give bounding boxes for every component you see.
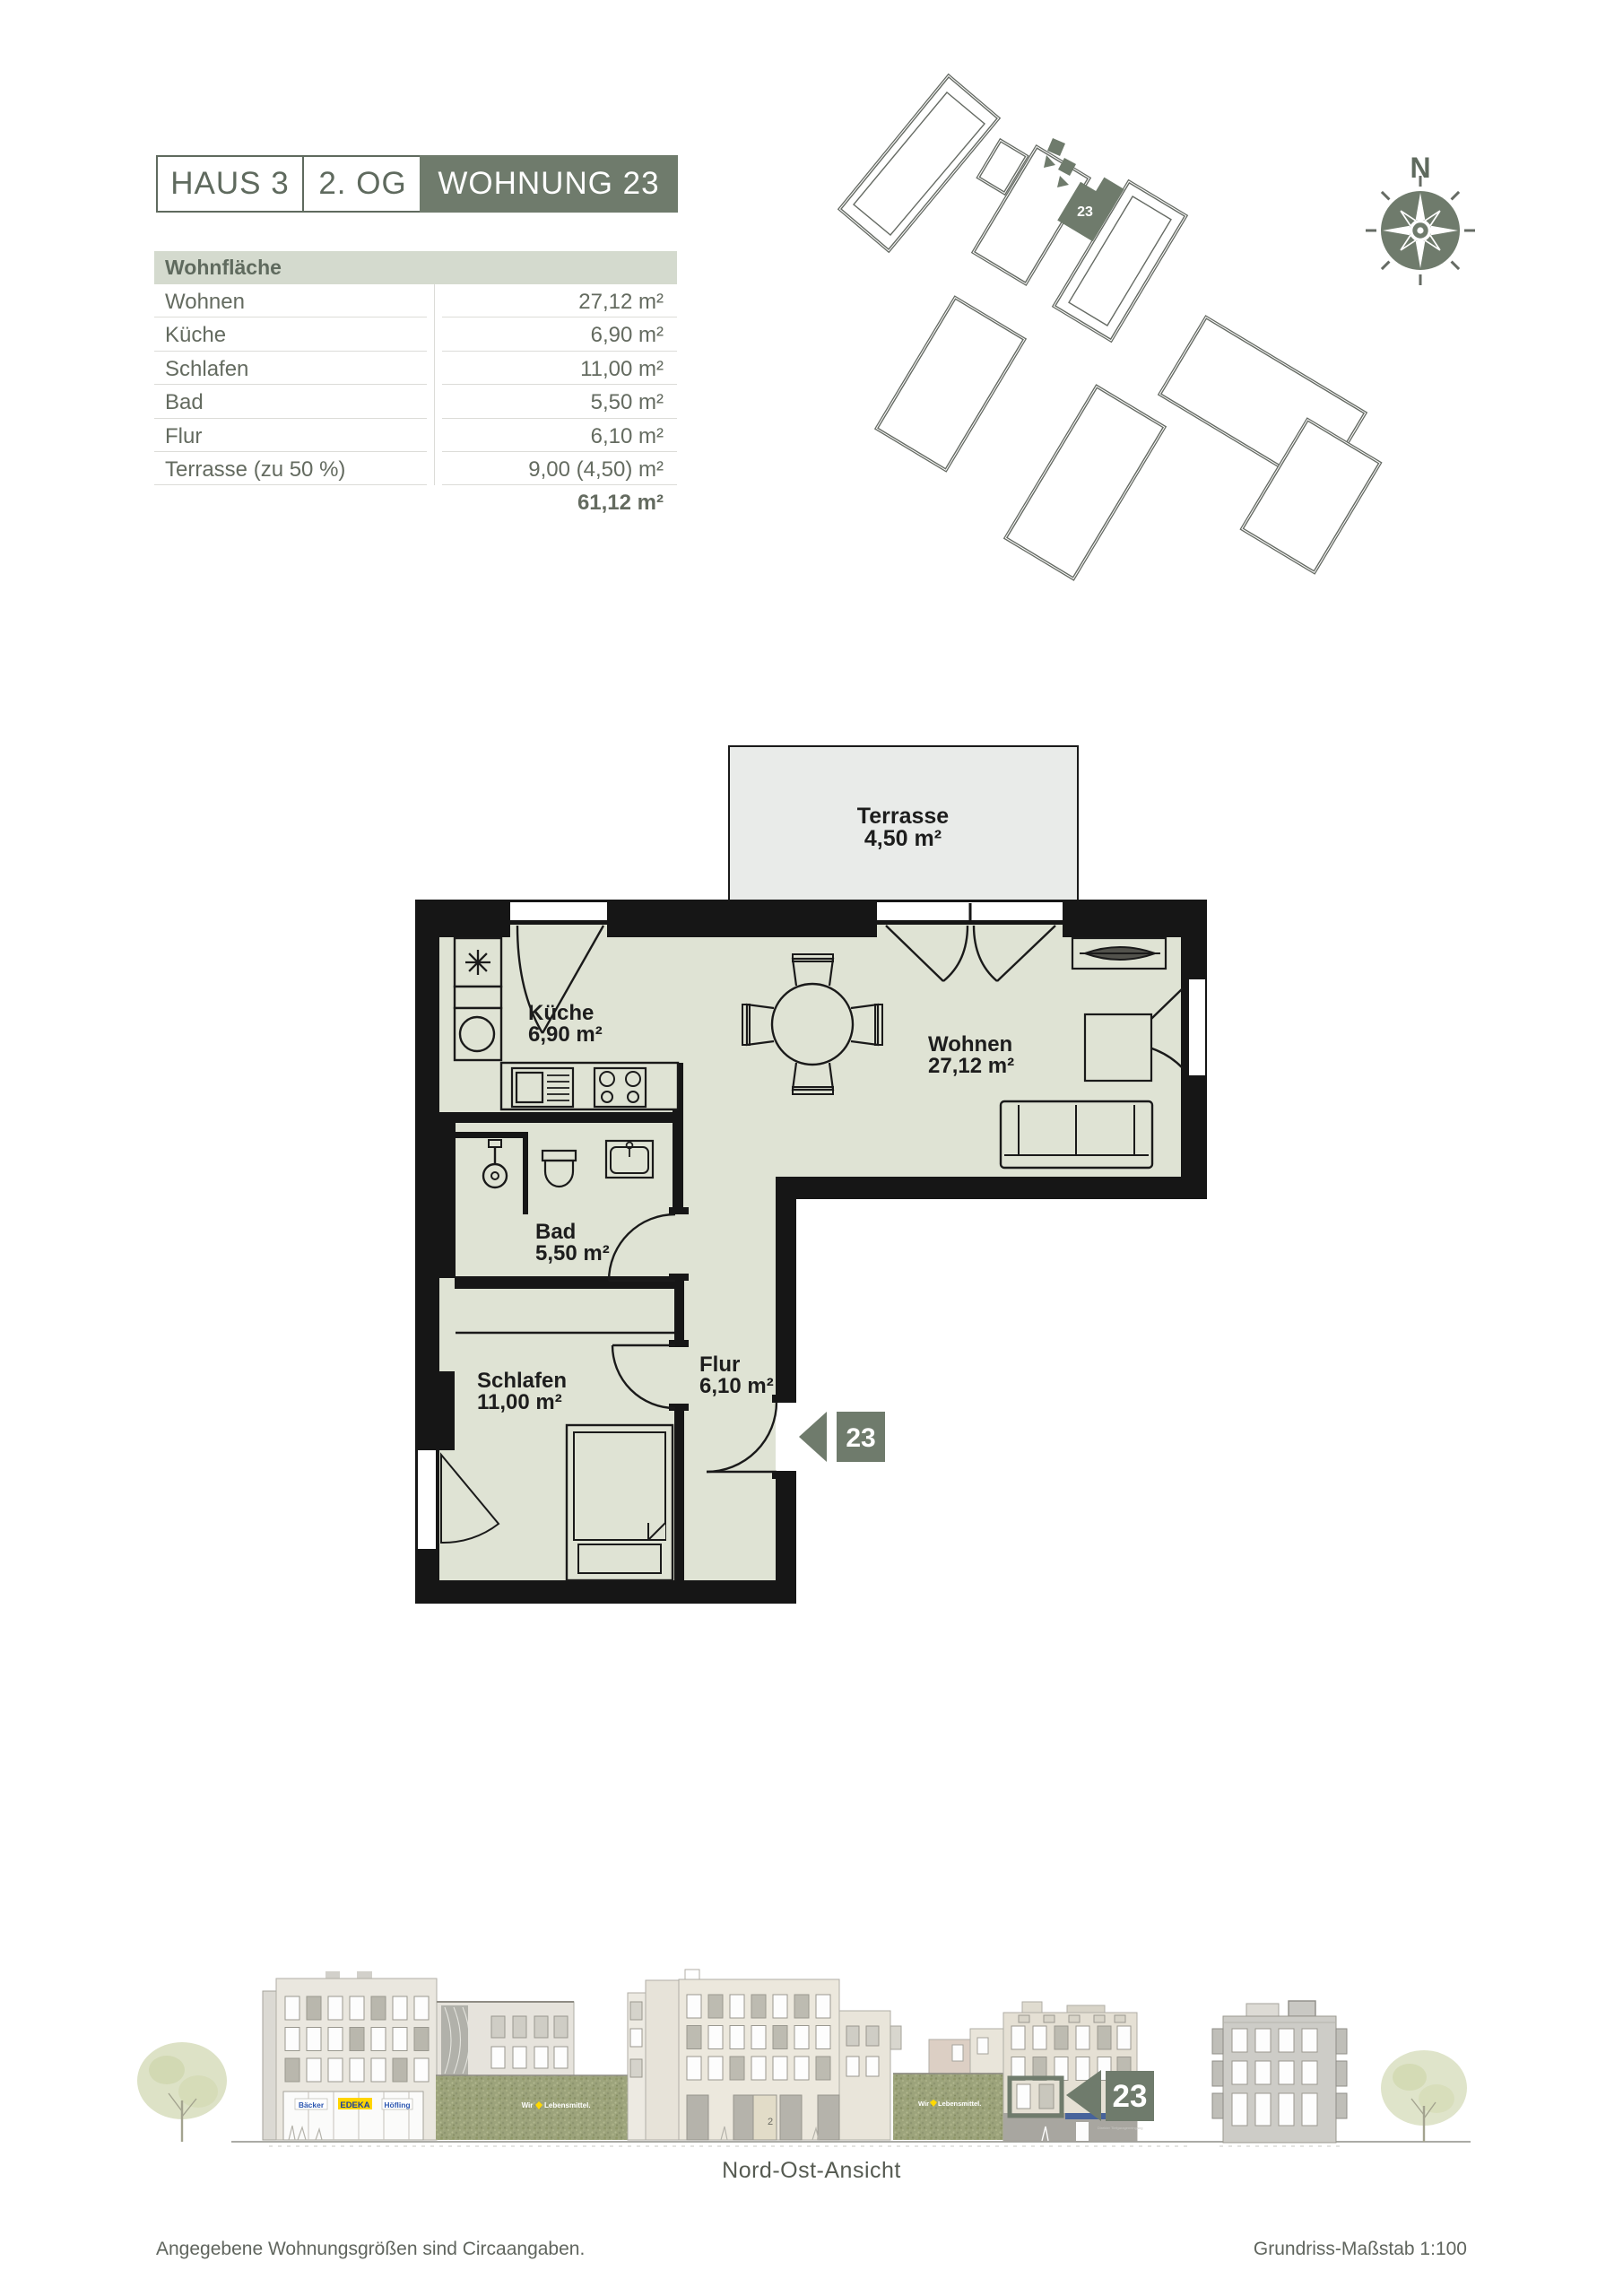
svg-text:EDEKA: EDEKA [340, 2100, 369, 2110]
svg-text:Höfling: Höfling [384, 2100, 410, 2109]
svg-text:27,12 m²: 27,12 m² [928, 1054, 1014, 1078]
svg-text:Direkter Tiefgarageneingang: Direkter Tiefgarageneingang [1098, 2126, 1142, 2130]
svg-text:11,00 m²: 11,00 m² [477, 1390, 562, 1414]
svg-text:Küche: Küche [528, 1001, 594, 1025]
svg-text:23: 23 [1077, 204, 1093, 220]
svg-text:Wir: Wir [522, 2101, 534, 2109]
svg-text:Lebensmittel.: Lebensmittel. [544, 2101, 591, 2109]
svg-text:Wohnen: Wohnen [928, 1032, 1012, 1057]
svg-text:Terrasse: Terrasse [857, 804, 949, 829]
svg-text:Bad: Bad [535, 1220, 576, 1244]
svg-text:Flur: Flur [699, 1352, 740, 1377]
svg-text:Nord-Ost-Ansicht: Nord-Ost-Ansicht [722, 2158, 901, 2183]
svg-text:Schlafen: Schlafen [477, 1369, 567, 1393]
svg-text:Wir: Wir [918, 2100, 929, 2108]
svg-text:5,50 m²: 5,50 m² [535, 1241, 610, 1265]
svg-text:Bäcker: Bäcker [299, 2100, 325, 2109]
svg-text:23: 23 [1113, 2079, 1148, 2114]
svg-text:6,10 m²: 6,10 m² [699, 1374, 774, 1398]
svg-text:Lebensmittel.: Lebensmittel. [938, 2100, 981, 2108]
svg-text:4,50 m²: 4,50 m² [864, 826, 942, 851]
svg-text:6,90 m²: 6,90 m² [528, 1022, 603, 1047]
svg-text:2: 2 [768, 2117, 773, 2127]
svg-text:23: 23 [846, 1423, 875, 1453]
